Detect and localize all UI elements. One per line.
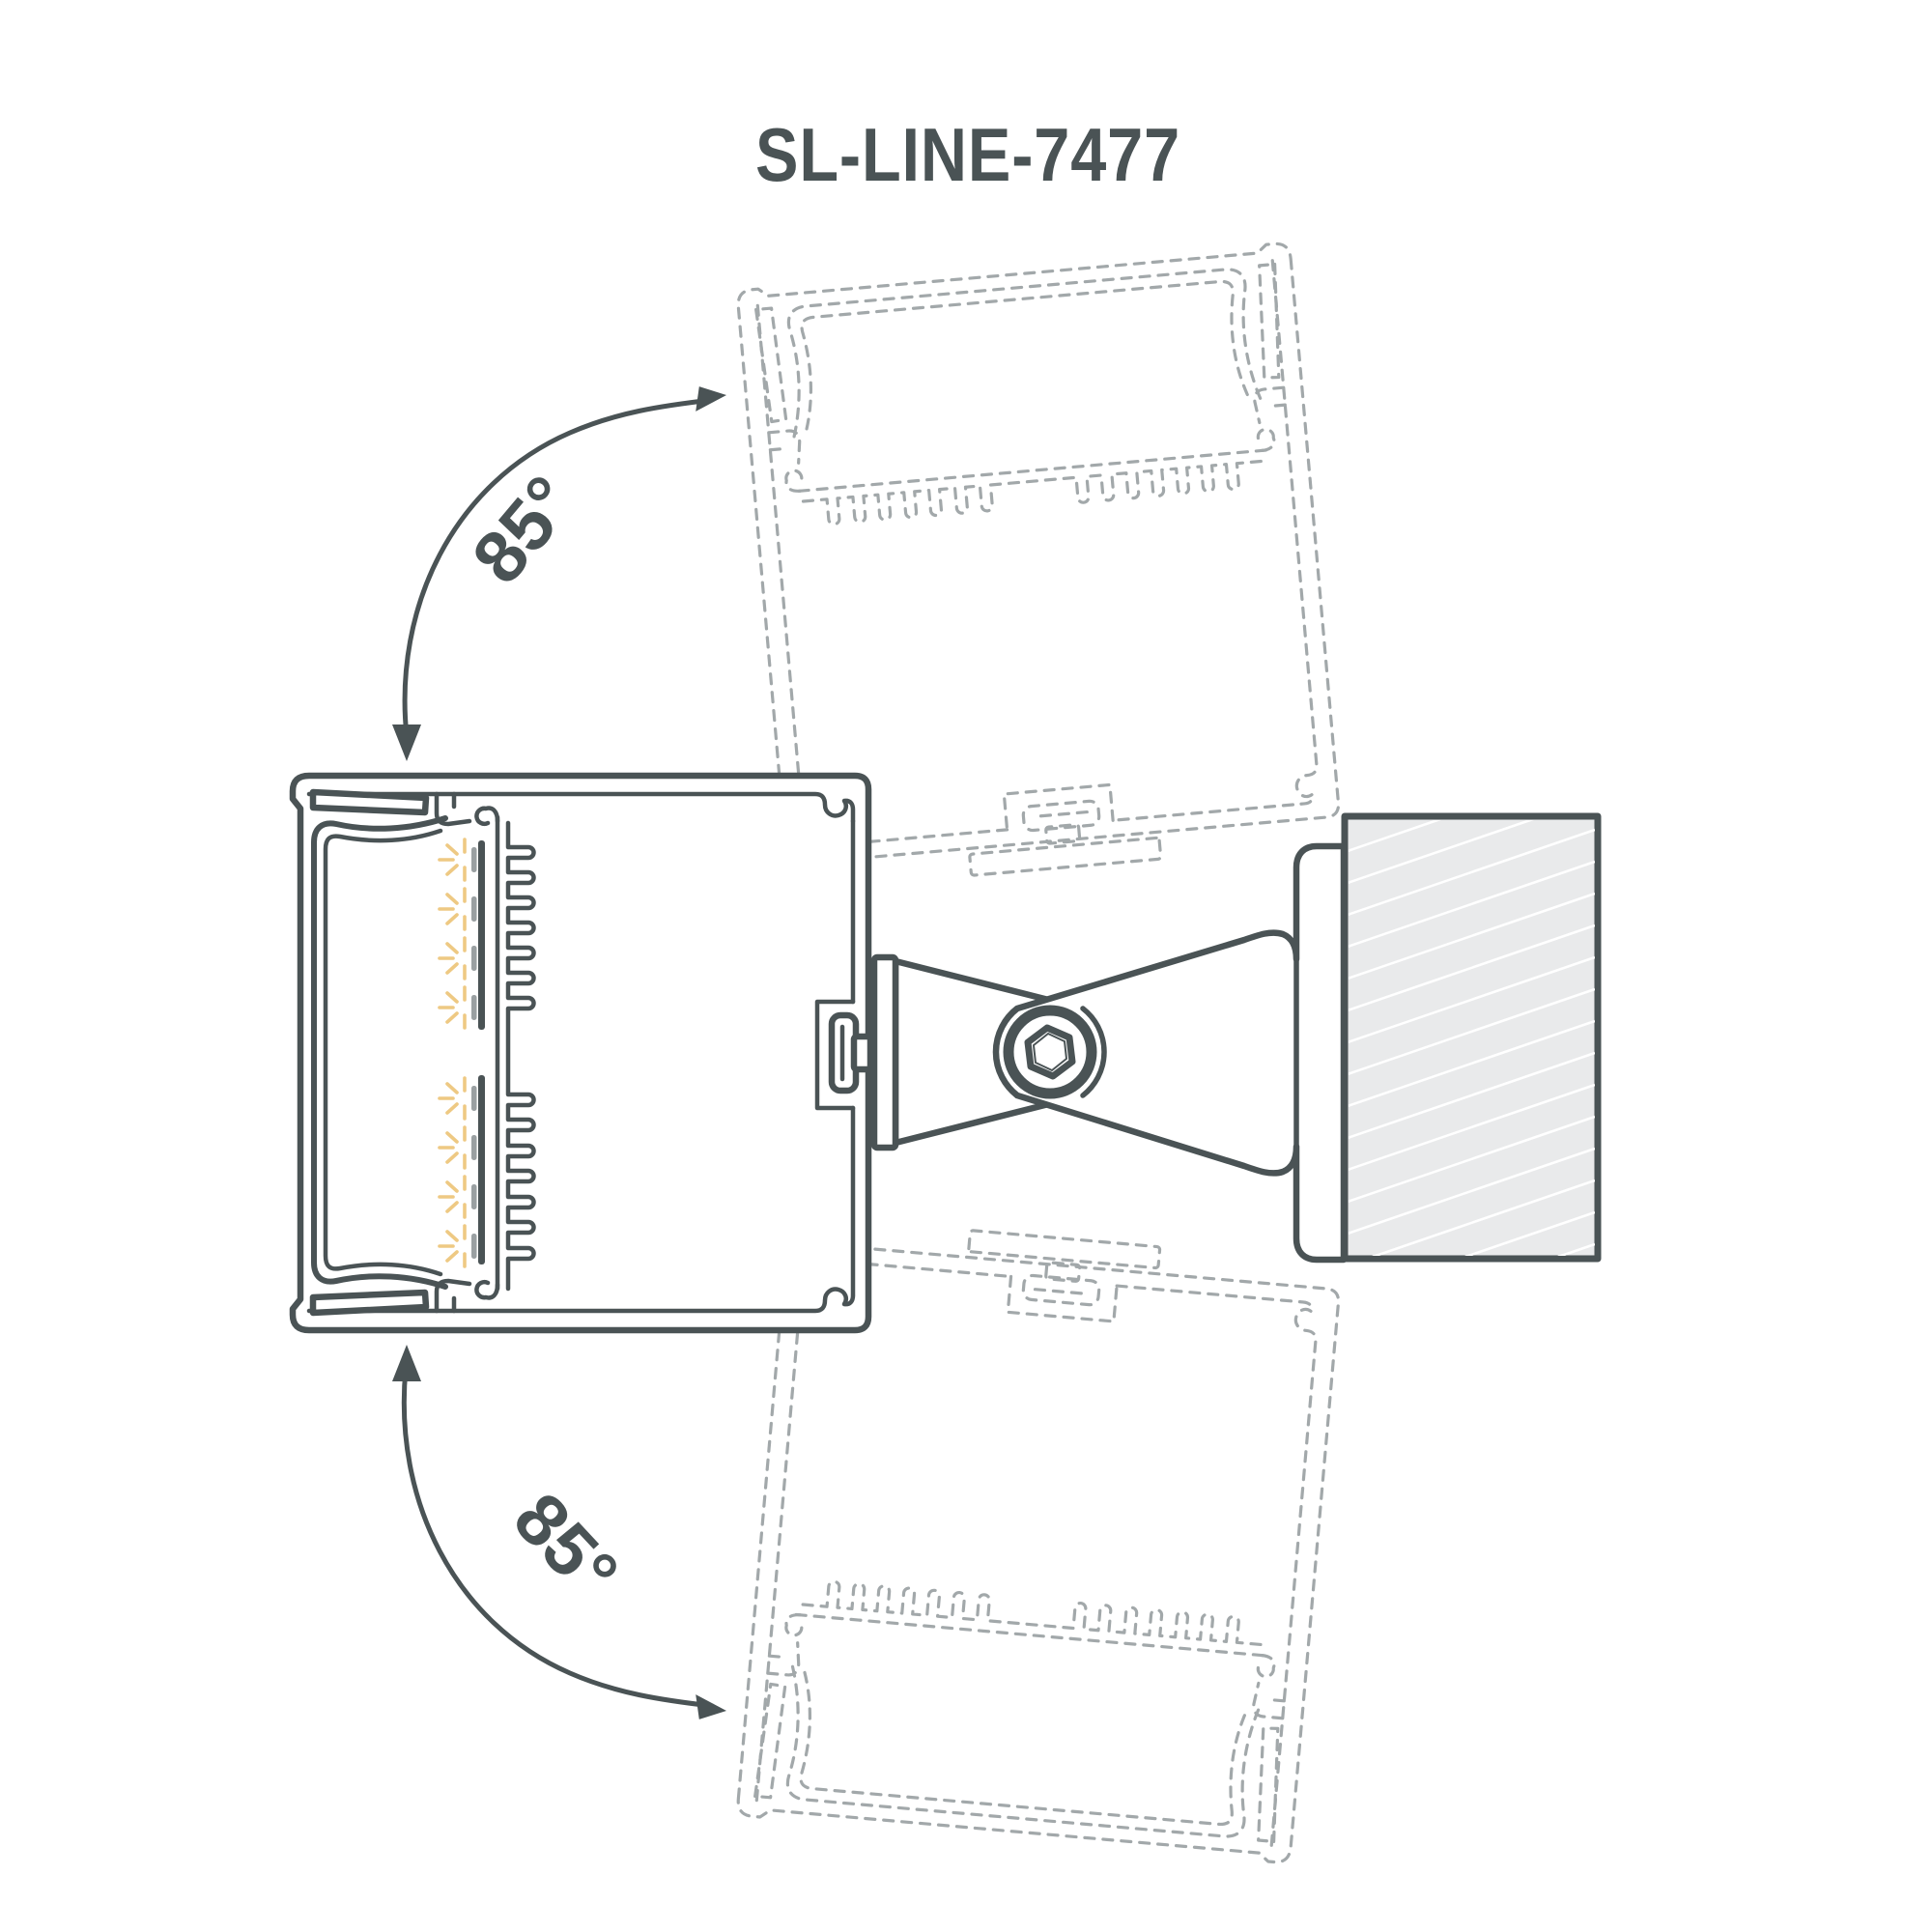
rotation-arrow-top-icon [392, 386, 726, 761]
product-title: SL-LINE-7477 [755, 112, 1180, 197]
wall-section [1345, 734, 1598, 1329]
rotation-angle-label-bottom: 85° [497, 1478, 634, 1615]
diagram-page: 85° 85° SL-LINE-7477 [0, 0, 1932, 1932]
diagram-canvas: 85° 85° SL-LINE-7477 [0, 0, 1932, 1932]
luminaire-profile [293, 776, 895, 1330]
rotation-angle-label-top: 85° [457, 461, 591, 599]
mounting-bracket [895, 846, 1344, 1260]
